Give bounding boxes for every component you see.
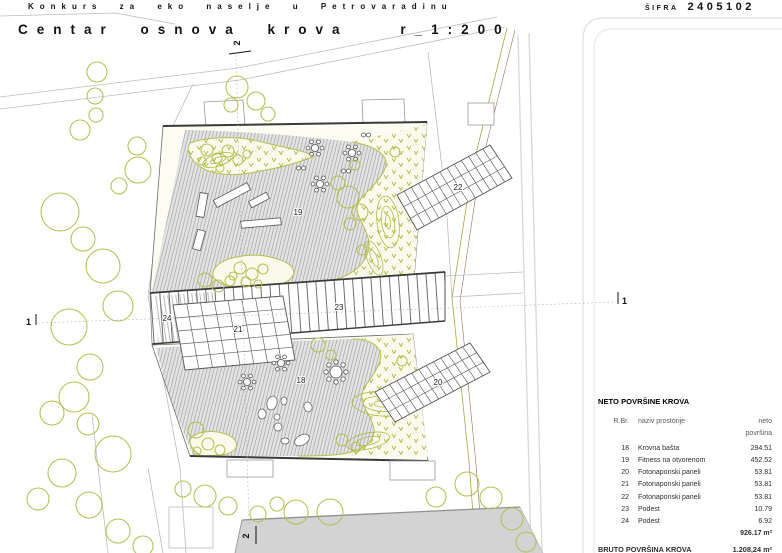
col-header-name: naziv prostorije [638, 416, 732, 440]
drawing-title: Centar osnova krova r_1:200 [18, 22, 511, 37]
sheet-code: ŠIFRA 2405102 [645, 1, 755, 13]
area-label-23: 23 [335, 303, 344, 312]
col-header-num: R.Br. [598, 416, 638, 440]
areas-table: NETO POVRŠINE KROVA R.Br. naziv prostori… [598, 397, 772, 553]
bruto-label: BRUTO POVRŠINA KROVA [598, 545, 692, 553]
drawing-sheet: 1 1 2 2 19 18 23 21 24 22 20 Konkurs za … [0, 0, 782, 553]
table-header-row: R.Br. naziv prostorije neto površina [598, 416, 772, 440]
table-row: 20 Fotonaponski paneli 53.81 [598, 467, 772, 479]
section-marker-2-top: 2 [232, 40, 242, 45]
area-label-19: 19 [294, 208, 303, 217]
table-row: 19 Fitness na otvorenom 452.52 [598, 455, 772, 467]
table-row: 22 Fotonaponski paneli 53.81 [598, 492, 772, 504]
section-marker-2-bottom: 2 [241, 533, 251, 538]
area-label-21: 21 [234, 325, 243, 334]
col-header-area: neto površina [732, 416, 772, 440]
table-total-row: 926.17 m² [598, 528, 772, 540]
competition-title: Konkurs za eko naselje u Petrovaradinu [28, 2, 453, 11]
area-label-20: 20 [434, 378, 443, 387]
code-value: 2405102 [688, 1, 755, 13]
table-bruto-row: BRUTO POVRŠINA KROVA 1.208,24 m² [598, 545, 772, 553]
area-label-24: 24 [163, 314, 172, 323]
table-row: 24 Podest 6.92 [598, 516, 772, 528]
area-label-18: 18 [297, 376, 306, 385]
table-row: 21 Fotonaponski paneli 53.81 [598, 479, 772, 491]
table-title: NETO POVRŠINE KROVA [598, 397, 772, 406]
table-row: 23 Podest 10.79 [598, 504, 772, 516]
area-label-22: 22 [454, 183, 463, 192]
table-row: 18 Krovna bašta 294.51 [598, 443, 772, 455]
drawing-scale: r_1:200 [400, 22, 510, 37]
code-label: ŠIFRA [645, 5, 679, 12]
roof-bottom-boxes [227, 460, 435, 480]
road [235, 507, 543, 553]
drawing-title-text: Centar osnova krova [18, 22, 349, 37]
bruto-value: 1.208,24 m² [733, 545, 772, 553]
section-marker-1-right: 1 [622, 296, 627, 306]
section-marker-1-left: 1 [26, 317, 31, 327]
total-neto-value: 926.17 m² [732, 528, 772, 540]
